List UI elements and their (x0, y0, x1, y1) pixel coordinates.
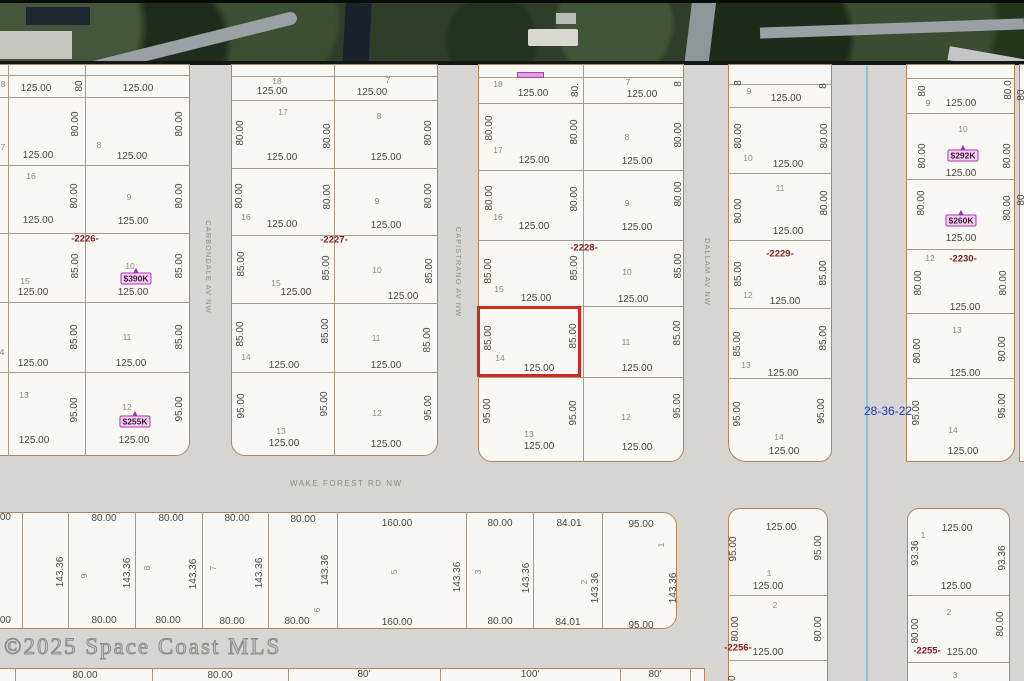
dimension-label: 125.00 (622, 364, 653, 374)
dimension-label: 85.00 (175, 253, 185, 278)
lot-number: 15 (494, 285, 503, 294)
dimension-label: 80.00 (734, 198, 744, 223)
dimension-label: 80.00 (914, 270, 924, 295)
dimension-label: 80.00 (918, 143, 928, 168)
dimension-label: 125.00 (946, 99, 977, 109)
lot-line (478, 170, 684, 171)
dimension-label: 125.00 (119, 436, 150, 446)
lot-number: 8 (625, 133, 630, 142)
dimension-label: 80.00 (728, 675, 738, 681)
lot-number: 1 (767, 569, 772, 578)
dimension-label: 80.00 (570, 186, 580, 211)
dimension-label: 125.00 (18, 359, 49, 369)
aerial-photo-strip (0, 0, 1024, 65)
dimension-label: .00 (0, 616, 11, 626)
lot-line (533, 512, 534, 628)
dimension-label: 8 (674, 81, 684, 87)
dimension-label: 80.00 (424, 120, 434, 145)
dimension-label: 143.36 (56, 557, 66, 588)
dimension-label: 125.00 (947, 648, 978, 658)
dimension-label: 125.00 (281, 288, 312, 298)
dimension-label: 95.00 (237, 393, 247, 418)
lot-line (22, 512, 23, 628)
lot-line (907, 662, 1010, 663)
dimension-label: 80.00 (424, 183, 434, 208)
dimension-label: 143.36 (189, 559, 199, 590)
dimension-label: 85.00 (819, 260, 829, 285)
dimension-label: 125.00 (357, 88, 388, 98)
lot-line (231, 372, 438, 373)
block-number: -2230- (949, 254, 976, 264)
dimension-label: 85.00 (425, 258, 435, 283)
dimension-label: 125.00 (123, 84, 154, 94)
lot-number: 1 (921, 531, 926, 540)
lot-line (231, 303, 438, 304)
lot-number: 7 (1, 143, 6, 152)
lot-line (268, 512, 269, 628)
lot-number: 8 (97, 141, 102, 150)
dimension-label: 80.0 (1004, 80, 1014, 99)
block-number: -2228- (570, 243, 597, 253)
lot-number: 15 (271, 279, 280, 288)
dimension-label: 85.00 (734, 261, 744, 286)
lot-line (440, 668, 441, 681)
lot-number: 10 (743, 154, 752, 163)
lot-number: 14 (774, 433, 783, 442)
dimension-label: 100' (521, 670, 540, 680)
lot-line (602, 512, 603, 628)
dimension-label: 160.00 (382, 519, 413, 529)
lot-number: 14 (241, 353, 250, 362)
dimension-label: 125.00 (773, 160, 804, 170)
dimension-label: 125.00 (518, 89, 549, 99)
lot-line (620, 668, 621, 681)
lot-line (0, 302, 190, 303)
dimension-label: 80.00 (290, 515, 315, 525)
dimension-label: 80 (918, 85, 928, 96)
lot-line (906, 313, 1015, 314)
lot-line (0, 165, 190, 166)
dimension-label: 80.00 (1003, 195, 1013, 220)
lot-number: 13 (524, 430, 533, 439)
parcel-block[interactable] (0, 512, 677, 629)
dimension-label: 125.00 (524, 442, 555, 452)
dimension-label: 125.00 (753, 648, 784, 658)
dimension-label: 80.00 (917, 190, 927, 215)
dimension-label: 80.00 (284, 617, 309, 627)
dimension-label: 125.00 (269, 361, 300, 371)
lot-line (478, 103, 684, 104)
lot-number: 18 (493, 80, 502, 89)
dimension-label: 95.00 (817, 398, 827, 423)
aerial-road-corner (947, 46, 1024, 65)
dimension-label: 85.00 (237, 251, 247, 276)
lot-number: 1 (657, 543, 666, 548)
lot-number: 9 (625, 199, 630, 208)
lot-number: 11 (372, 334, 381, 343)
dimension-label: 80.00 (323, 123, 333, 148)
lot-number: 7 (386, 76, 391, 85)
lot-line (231, 76, 438, 77)
aerial-driveway (556, 13, 576, 24)
block-number: -2229- (766, 249, 793, 259)
aerial-dark-roof (26, 7, 90, 25)
dimension-label: 80.00 (1003, 143, 1013, 168)
dimension-label: 125.00 (766, 523, 797, 533)
dimension-label: 80.00 (913, 338, 923, 363)
block-number: -2256- (724, 643, 751, 653)
lot-number: 12 (743, 291, 752, 300)
dimension-label: 85.00 (423, 327, 433, 352)
block-number: -2255- (913, 646, 940, 656)
lot-line (68, 512, 69, 628)
dimension-label: 125.00 (622, 157, 653, 167)
lot-line (202, 512, 203, 628)
lot-number: 12 (925, 254, 934, 263)
dimension-label: 84.01 (556, 519, 581, 529)
dimension-label: 95.00 (320, 391, 330, 416)
dimension-label: 95.00 (912, 400, 922, 425)
lot-line (907, 595, 1010, 596)
dimension-label: 80.00 (72, 671, 97, 681)
lot-number: 6 (313, 608, 322, 613)
lot-line (906, 179, 1015, 180)
dimension-label: 80.00 (911, 618, 921, 643)
price-tag: $255K (119, 416, 150, 428)
partial-price-marker (517, 72, 544, 78)
dimension-label: 8 (819, 83, 829, 89)
dimension-label: 125.00 (18, 288, 49, 298)
dimension-label: 143.36 (453, 562, 463, 593)
dimension-label: 8 (734, 80, 744, 86)
price-marker[interactable]: ▲$260K (945, 210, 976, 227)
dimension-label: 125.00 (118, 288, 149, 298)
lot-number: 9 (375, 197, 380, 206)
dimension-label: 95.00 (673, 393, 683, 418)
dimension-label: 80.00 (175, 111, 185, 136)
lot-line (728, 595, 828, 596)
street-name-label: CAPISTRANO AV NW (454, 227, 462, 317)
dimension-label: 125.00 (946, 234, 977, 244)
dimension-label: 80.00 (487, 617, 512, 627)
dimension-label: 80.00 (91, 616, 116, 626)
mls-watermark: ©2025 Space Coast MLS (4, 634, 281, 660)
aerial-road-top-right (760, 18, 1024, 38)
dimension-label: 95.00 (175, 396, 185, 421)
dimension-label: 85.00 (484, 258, 494, 283)
dimension-label: 93.36 (911, 540, 921, 565)
dimension-label: 95.00 (483, 398, 493, 423)
dimension-label: 125.00 (941, 582, 972, 592)
dimension-label: 125.00 (950, 369, 981, 379)
selected-parcel-outline[interactable] (477, 306, 581, 377)
lot-line (0, 97, 190, 98)
dimension-label: 125.00 (269, 439, 300, 449)
lot-number: 9 (80, 574, 89, 579)
dimension-label: 80' (357, 670, 370, 680)
lot-line (231, 168, 438, 169)
lot-line (0, 372, 190, 373)
parcel-block[interactable] (0, 668, 705, 681)
section-township-range-label: 28-36-22 (864, 404, 912, 418)
dimension-label: 125.00 (19, 436, 50, 446)
dimension-label: 125.00 (942, 524, 973, 534)
dimension-label: 125.00 (257, 87, 288, 97)
dimension-label: 80 (1017, 89, 1024, 100)
dimension-label: 125.00 (519, 222, 550, 232)
lot-number: 9 (747, 87, 752, 96)
dimension-label: 80.00 (674, 181, 684, 206)
lot-number: 2 (580, 580, 589, 585)
lot-line (135, 512, 136, 628)
lot-number: 13 (741, 361, 750, 370)
dimension-label: 125.00 (770, 297, 801, 307)
dimension-label: 125.00 (950, 303, 981, 313)
dimension-label: 93.36 (998, 545, 1008, 570)
price-tag: $292K (947, 150, 978, 162)
dimension-label: 125.00 (627, 90, 658, 100)
lot-line (690, 668, 691, 681)
dimension-label: 95.00 (569, 400, 579, 425)
lot-number: 2 (773, 601, 778, 610)
lot-line (337, 512, 338, 628)
dimension-label: 125.00 (371, 221, 402, 231)
dimension-label: 95.00 (628, 621, 653, 631)
lot-number: 10 (622, 268, 631, 277)
plat-map[interactable]: 8125.0080125.00780.0080.008125.00125.001… (0, 0, 1024, 681)
canal-line (866, 66, 868, 681)
price-marker[interactable]: ▲$292K (947, 145, 978, 162)
lot-number: 3 (953, 671, 958, 680)
lot-number: 13 (276, 427, 285, 436)
dimension-label: 125.00 (388, 292, 419, 302)
dimension-label: 125.00 (521, 294, 552, 304)
dimension-label: 80 (1017, 194, 1024, 205)
dimension-label: 143.36 (669, 573, 679, 604)
dimension-label: 85.00 (674, 253, 684, 278)
lot-number: 2 (947, 608, 952, 617)
dimension-label: 80.00 (323, 184, 333, 209)
dimension-label: 143.36 (522, 563, 532, 594)
lot-number: 3 (474, 570, 483, 575)
lot-number: 17 (278, 108, 287, 117)
dimension-label: 125.00 (116, 359, 147, 369)
lot-number: 8 (377, 112, 382, 121)
price-tag: $390K (120, 273, 151, 285)
lot-line (583, 64, 584, 462)
lot-number: 16 (241, 213, 250, 222)
price-marker[interactable]: ▲$390K (120, 268, 151, 285)
dimension-label: 125.00 (768, 369, 799, 379)
lot-line (478, 240, 684, 241)
lot-number: 11 (123, 333, 132, 342)
dimension-label: 80.00 (175, 183, 185, 208)
lot-line (334, 64, 335, 456)
lot-line (728, 173, 832, 174)
street-name-label: CARBONDALE AV NW (204, 220, 212, 313)
aerial-canal (342, 2, 371, 65)
dimension-label: 80.00 (219, 617, 244, 627)
dimension-label: 125.00 (267, 220, 298, 230)
lot-line (15, 668, 16, 681)
dimension-label: 80.00 (999, 270, 1009, 295)
dimension-label: 143.36 (255, 558, 265, 589)
dimension-label: 80.00 (734, 123, 744, 148)
lot-number: 8 (143, 566, 152, 571)
dimension-label: 80.00 (224, 514, 249, 524)
dimension-label: 80.00 (155, 616, 180, 626)
dimension-label: 125.00 (371, 153, 402, 163)
dimension-label: 85.00 (236, 321, 246, 346)
lot-line (906, 78, 1015, 79)
dimension-label: 95.00 (814, 535, 824, 560)
dimension-label: 125.00 (371, 361, 402, 371)
aerial-building (0, 31, 72, 59)
dimension-label: 80.00 (70, 183, 80, 208)
block-number: -2226- (71, 234, 98, 244)
dimension-label: 125.00 (622, 223, 653, 233)
dimension-label: 85.00 (733, 331, 743, 356)
lot-number: 15 (20, 277, 29, 286)
lot-line (152, 668, 153, 681)
lot-number: 13 (952, 326, 961, 335)
dimension-label: 80.00 (998, 336, 1008, 361)
dimension-label: 125.00 (948, 447, 979, 457)
lot-number: 9 (127, 193, 132, 202)
lot-number: 4 (0, 348, 4, 357)
street-name-label: DALLAM AV NW (703, 238, 711, 306)
price-marker[interactable]: ▲$255K (119, 411, 150, 428)
dimension-label: 80.00 (158, 514, 183, 524)
dimension-label: 80.00 (487, 519, 512, 529)
lot-number: 7 (626, 78, 631, 87)
lot-number: 12 (621, 413, 630, 422)
lot-line (466, 512, 467, 628)
dimension-label: 95.00 (424, 395, 434, 420)
dimension-label: 143.36 (123, 558, 133, 589)
dimension-label: 125.00 (771, 94, 802, 104)
lot-line (478, 377, 684, 378)
lot-line (231, 100, 438, 101)
lot-number: 11 (622, 338, 631, 347)
dimension-label: 80.00 (570, 119, 580, 144)
dimension-label: 80.00 (996, 611, 1006, 636)
dimension-label: 80.00 (820, 190, 830, 215)
dimension-label: 125.00 (946, 169, 977, 179)
lot-line (728, 308, 832, 309)
lot-number: 10 (958, 125, 967, 134)
dimension-label: 125.00 (371, 440, 402, 450)
block-number: -2227- (320, 235, 347, 245)
dimension-label: 160.00 (382, 618, 413, 628)
dimension-label: 85.00 (673, 320, 683, 345)
lot-number: 16 (26, 172, 35, 181)
lot-line (85, 64, 86, 456)
dimension-label: 125.00 (622, 443, 653, 453)
lot-number: 17 (493, 146, 502, 155)
dimension-label: 95.00 (729, 536, 739, 561)
dimension-label: 85.00 (819, 325, 829, 350)
dimension-label: 125.00 (753, 582, 784, 592)
lot-number: 13 (19, 391, 28, 400)
dimension-label: 80.00 (820, 123, 830, 148)
dimension-label: 143.36 (591, 573, 601, 604)
dimension-label: 80. (571, 83, 581, 97)
dimension-label: 143.36 (321, 555, 331, 586)
dimension-label: 80 (75, 80, 85, 91)
lot-number: 10 (372, 266, 381, 275)
lot-number: 18 (272, 77, 281, 86)
lot-number: 11 (776, 184, 785, 193)
dimension-label: 125.00 (118, 217, 149, 227)
dimension-label: 125.00 (618, 295, 649, 305)
lot-number: 12 (372, 409, 381, 418)
dimension-label: 95.00 (733, 401, 743, 426)
lot-line (906, 249, 1015, 250)
aerial-road (82, 11, 299, 65)
dimension-label: 85.00 (175, 324, 185, 349)
dimension-label: 80.00 (814, 616, 824, 641)
lot-number: 5 (390, 570, 399, 575)
dimension-label: 125.00 (23, 216, 54, 226)
dimension-label: 125.00 (519, 156, 550, 166)
lot-line (0, 75, 190, 76)
lot-number: 9 (926, 99, 931, 108)
dimension-label: 80.00 (71, 111, 81, 136)
lot-line (288, 668, 289, 681)
dimension-label: 95.00 (70, 397, 80, 422)
dimension-label: 125.00 (117, 152, 148, 162)
dimension-label: 95.00 (628, 520, 653, 530)
dimension-label: 80.00 (485, 115, 495, 140)
dimension-label: 80' (648, 670, 661, 680)
dimension-label: 125.00 (267, 153, 298, 163)
lot-line (8, 64, 9, 456)
road-label-wake-forest: WAKE FOREST RD NW (290, 479, 403, 488)
lot-line (728, 107, 832, 108)
lot-line (906, 113, 1015, 114)
dimension-label: 80.00 (731, 616, 741, 641)
parcel-block[interactable] (1019, 64, 1024, 462)
lot-number: 7 (209, 566, 218, 571)
aerial-white-house (528, 29, 578, 46)
dimension-label: 125.00 (769, 447, 800, 457)
dimension-label: 80.00 (235, 183, 245, 208)
dimension-label: 85.00 (570, 255, 580, 280)
lot-number: 8 (1, 80, 6, 89)
dimension-label: .00 (0, 513, 11, 523)
dimension-label: 80.00 (485, 185, 495, 210)
dimension-label: 85.00 (322, 255, 332, 280)
lot-number: 14 (948, 426, 957, 435)
dimension-label: 125.00 (21, 84, 52, 94)
price-tag: $260K (945, 215, 976, 227)
dimension-label: 125.00 (23, 151, 54, 161)
lot-line (478, 77, 684, 78)
dimension-label: 95.00 (998, 393, 1008, 418)
dimension-label: 80.00 (91, 514, 116, 524)
dimension-label: 80.00 (674, 122, 684, 147)
dimension-label: 85.00 (321, 318, 331, 343)
lot-line (728, 240, 832, 241)
parcel-block[interactable] (478, 64, 684, 462)
lot-number: 16 (493, 213, 502, 222)
dimension-label: 85.00 (71, 253, 81, 278)
lot-line (728, 660, 828, 661)
dimension-label: 85.00 (70, 324, 80, 349)
dimension-label: 84.01 (555, 618, 580, 628)
dimension-label: 125.00 (773, 227, 804, 237)
